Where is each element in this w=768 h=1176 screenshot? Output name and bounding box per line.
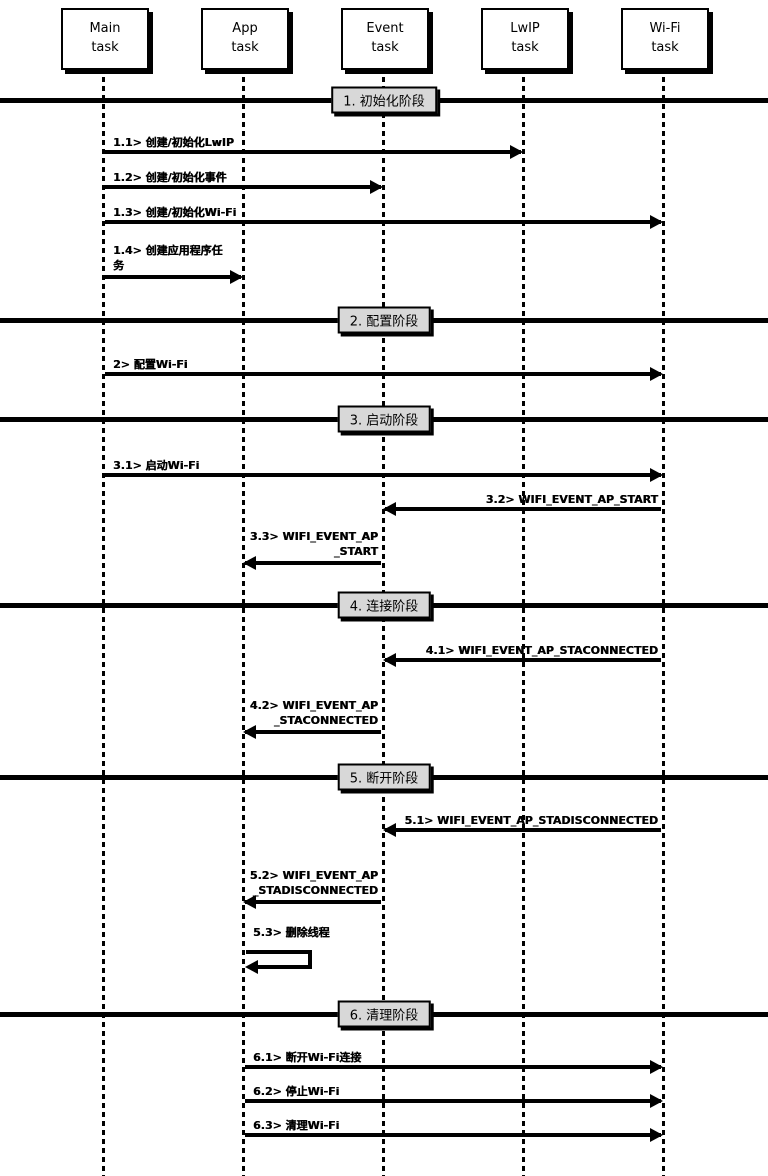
message-label-3-2: 3.2> WIFI_EVENT_AP_START	[486, 492, 658, 507]
actor-label: LwIP	[510, 20, 540, 39]
actor-label: task	[511, 39, 538, 58]
lifeline-main-task	[102, 68, 105, 1176]
message-arrow-6-2	[245, 1099, 661, 1103]
message-arrow-1-4	[105, 275, 241, 279]
message-label-6-3: 6.3> 清理Wi-Fi	[253, 1118, 339, 1133]
phase-label-2: 2. 配置阶段	[338, 307, 431, 334]
actor-box-lwip-task: LwIP task	[481, 8, 569, 70]
phase-label-5: 5. 断开阶段	[338, 764, 431, 791]
message-label-line: 5.2> WIFI_EVENT_AP	[250, 868, 378, 883]
actor-box-event-task: Event task	[341, 8, 429, 70]
message-arrow-3-1	[105, 473, 661, 477]
actor-box-app-task: App task	[201, 8, 289, 70]
message-arrow-1-2	[105, 185, 381, 189]
actor-label: Main	[89, 20, 120, 39]
message-arrow-1-1	[105, 150, 521, 154]
message-arrow-6-1	[245, 1065, 661, 1069]
actor-label: App	[232, 20, 257, 39]
lifeline-app-task	[242, 68, 245, 1176]
actor-box-main-task: Main task	[61, 8, 149, 70]
message-label-5-1: 5.1> WIFI_EVENT_AP_STADISCONNECTED	[405, 813, 659, 828]
lifeline-wifi-task	[662, 68, 665, 1176]
phase-label-6: 6. 清理阶段	[338, 1001, 431, 1028]
message-label-5-3: 5.3> 删除线程	[253, 925, 330, 940]
actor-label: task	[371, 39, 398, 58]
message-label-line: 3.3> WIFI_EVENT_AP	[250, 529, 378, 544]
actor-label: task	[651, 39, 678, 58]
message-label-line: 4.2> WIFI_EVENT_AP	[250, 698, 378, 713]
loop-top-line	[246, 950, 312, 954]
self-message-loop-5-3	[246, 950, 312, 969]
message-arrow-1-3	[105, 220, 661, 224]
message-arrow-4-1	[385, 658, 661, 662]
message-arrow-2	[105, 372, 661, 376]
message-arrow-5-2	[245, 900, 381, 904]
message-label-line: 务	[113, 258, 223, 273]
message-label-6-2: 6.2> 停止Wi-Fi	[253, 1084, 339, 1099]
message-label-3-1: 3.1> 启动Wi-Fi	[113, 458, 199, 473]
message-arrow-3-3	[245, 561, 381, 565]
message-label-6-1: 6.1> 断开Wi-Fi连接	[253, 1050, 361, 1065]
actor-box-wifi-task: Wi-Fi task	[621, 8, 709, 70]
actor-label: task	[91, 39, 118, 58]
lifeline-lwip-task	[522, 68, 525, 1176]
message-label-1-1: 1.1> 创建/初始化LwIP	[113, 135, 234, 150]
phase-label-3: 3. 启动阶段	[338, 406, 431, 433]
message-arrow-3-2	[385, 507, 661, 511]
message-arrow-4-2	[245, 730, 381, 734]
message-label-5-2: 5.2> WIFI_EVENT_AP _STADISCONNECTED	[250, 868, 378, 898]
actor-label: Event	[366, 20, 403, 39]
actor-label: task	[231, 39, 258, 58]
message-label-4-2: 4.2> WIFI_EVENT_AP _STACONNECTED	[250, 698, 378, 728]
message-label-4-1: 4.1> WIFI_EVENT_AP_STACONNECTED	[426, 643, 658, 658]
phase-label-4: 4. 连接阶段	[338, 592, 431, 619]
actor-label: Wi-Fi	[649, 20, 680, 39]
message-label-line: _STACONNECTED	[250, 713, 378, 728]
message-arrow-5-1	[385, 828, 661, 832]
message-arrow-6-3	[245, 1133, 661, 1137]
message-label-2: 2> 配置Wi-Fi	[113, 357, 187, 372]
phase-label-1: 1. 初始化阶段	[331, 87, 437, 114]
message-label-line: _START	[250, 544, 378, 559]
message-label-1-4: 1.4> 创建应用程序任 务	[113, 243, 223, 273]
message-label-3-3: 3.3> WIFI_EVENT_AP _START	[250, 529, 378, 559]
message-label-line: 1.4> 创建应用程序任	[113, 243, 223, 258]
message-label-line: _STADISCONNECTED	[250, 883, 378, 898]
loop-return-arrow	[256, 965, 312, 969]
message-label-1-3: 1.3> 创建/初始化Wi-Fi	[113, 205, 236, 220]
message-label-1-2: 1.2> 创建/初始化事件	[113, 170, 227, 185]
sequence-diagram: Main task App task Event task LwIP task …	[0, 0, 768, 1176]
